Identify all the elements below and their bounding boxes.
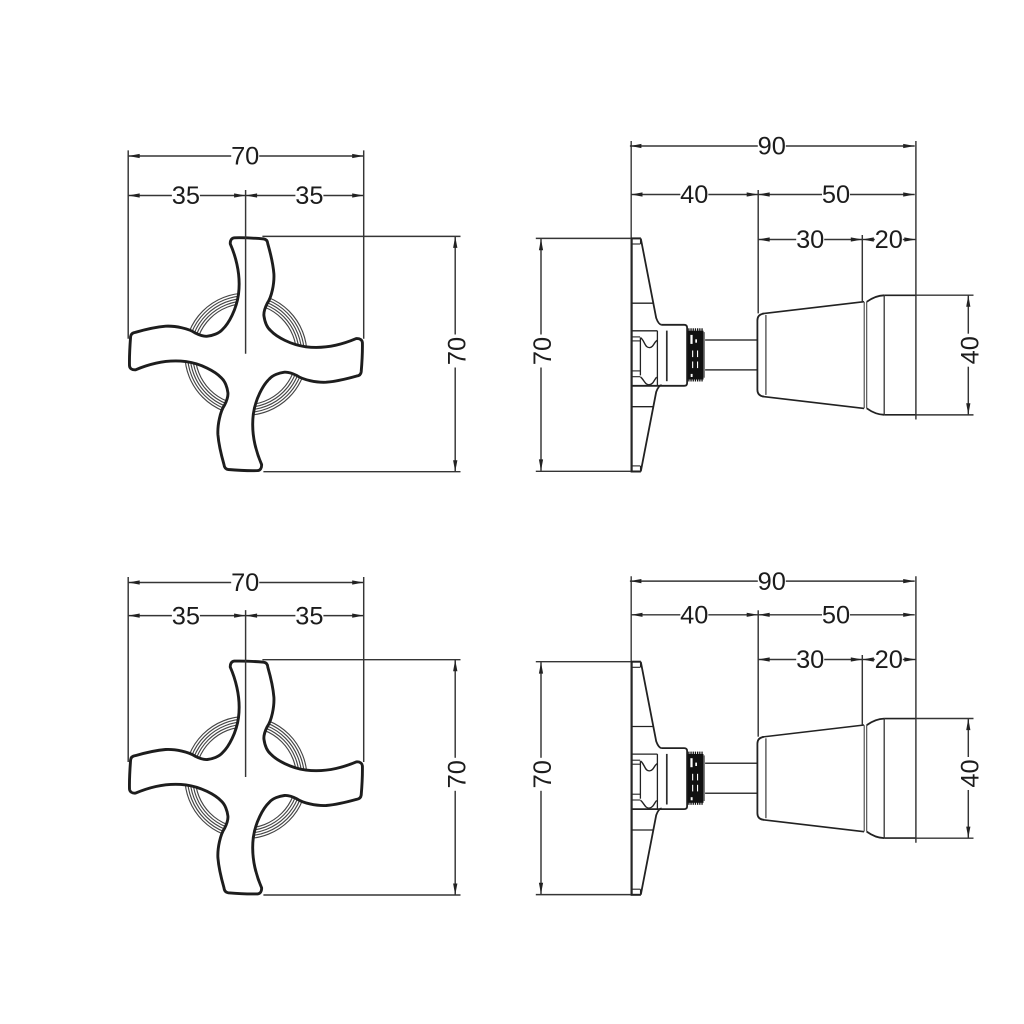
svg-text:35: 35 — [172, 182, 200, 210]
svg-text:40: 40 — [680, 602, 708, 630]
svg-text:40: 40 — [956, 759, 984, 787]
svg-text:20: 20 — [875, 226, 903, 254]
svg-text:30: 30 — [796, 646, 824, 674]
svg-text:50: 50 — [822, 181, 850, 209]
svg-text:30: 30 — [796, 226, 824, 254]
svg-text:70: 70 — [231, 569, 259, 597]
svg-text:90: 90 — [758, 568, 786, 596]
svg-text:70: 70 — [529, 337, 557, 365]
svg-text:35: 35 — [172, 602, 200, 630]
svg-text:35: 35 — [295, 602, 323, 630]
svg-text:50: 50 — [822, 602, 850, 630]
svg-text:35: 35 — [295, 182, 323, 210]
svg-text:70: 70 — [443, 760, 471, 788]
svg-text:20: 20 — [875, 646, 903, 674]
svg-text:70: 70 — [231, 143, 259, 171]
svg-text:40: 40 — [956, 336, 984, 364]
svg-text:40: 40 — [680, 181, 708, 209]
svg-text:90: 90 — [758, 133, 786, 161]
svg-text:70: 70 — [529, 760, 557, 788]
svg-text:70: 70 — [443, 337, 471, 365]
